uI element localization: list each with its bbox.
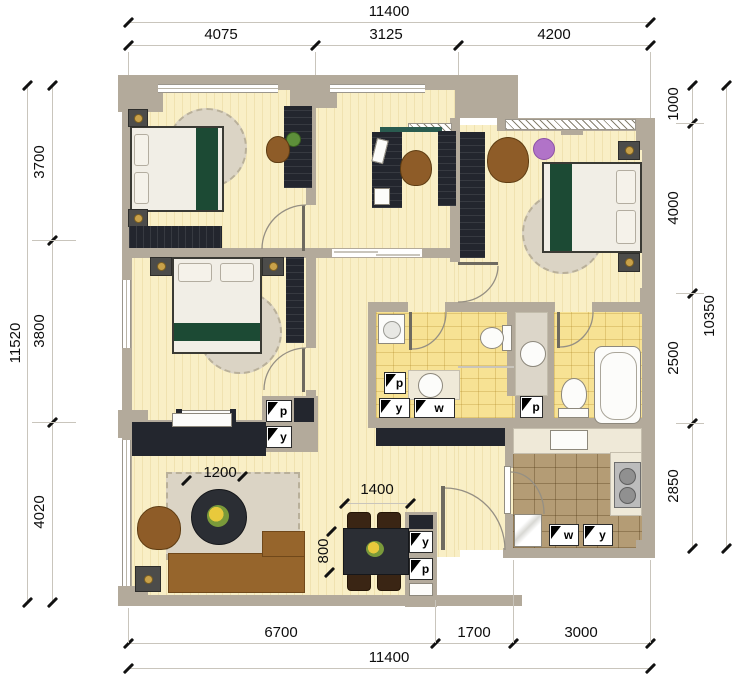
burner	[619, 468, 636, 485]
fridge	[514, 514, 542, 547]
stove	[614, 462, 641, 508]
door-arc	[511, 472, 544, 514]
dim-ext	[513, 560, 514, 643]
dim-ext	[458, 52, 459, 75]
bookshelf	[438, 131, 456, 206]
dim-tick	[645, 40, 656, 51]
floor-plan: p y p y w p y p w y 1200 1400 800 11400 …	[0, 0, 750, 692]
desk-chair	[400, 150, 432, 186]
wall-right	[642, 118, 655, 558]
dim-ext	[315, 52, 316, 75]
washer-drum	[383, 321, 401, 339]
dim-ext	[676, 293, 704, 294]
bed	[172, 257, 262, 354]
fixture-letter: y	[396, 401, 403, 415]
table-flowers	[366, 541, 384, 557]
column	[455, 75, 518, 118]
toilet-bowl	[480, 327, 504, 349]
fixture-tag: p	[520, 396, 543, 418]
dim-bottom-overall: 11400	[339, 649, 439, 666]
dim-ext	[128, 52, 129, 75]
window	[122, 440, 131, 586]
dim-line	[128, 22, 650, 23]
tv	[172, 413, 232, 427]
pillow	[134, 172, 149, 204]
fixture-tag: p	[266, 400, 292, 422]
kitchen-sink	[550, 430, 588, 450]
wall-bedroom2-right	[306, 258, 316, 348]
fixture-tag: p	[409, 558, 433, 580]
nightstand	[262, 257, 284, 276]
dim-left-seg3: 4020	[31, 482, 49, 542]
pillow	[134, 134, 149, 166]
desk-chair	[266, 136, 290, 163]
window	[122, 280, 131, 348]
dim-bottom-seg1: 6700	[231, 624, 331, 641]
fixture-letter: y	[280, 430, 287, 444]
bay-window-hatch	[505, 119, 636, 130]
dim-line	[27, 85, 28, 602]
nightstand	[618, 253, 640, 272]
shaft-block	[409, 515, 433, 529]
wardrobe	[286, 257, 304, 343]
dim-tick	[687, 543, 698, 554]
nightstand	[128, 109, 148, 127]
fixture-letter: p	[532, 400, 539, 414]
door-arc	[262, 205, 306, 249]
fixture-letter: w	[434, 401, 443, 415]
door-leaf	[504, 466, 511, 514]
wardrobe	[129, 226, 222, 248]
shaft-box	[409, 583, 433, 596]
shaft-block	[294, 398, 314, 422]
window	[158, 84, 278, 93]
dim-line	[344, 503, 410, 504]
dim-ext	[32, 240, 76, 241]
wardrobe	[460, 132, 485, 258]
shower-partition	[458, 366, 514, 368]
wall-bottom	[122, 595, 522, 606]
fixture-letter: y	[422, 535, 429, 549]
bed	[130, 126, 224, 212]
dim-ext	[676, 423, 704, 424]
tv-cabinet	[132, 422, 266, 456]
entry-porch	[437, 557, 505, 595]
plant	[533, 138, 555, 160]
dim-top-seg2: 3125	[336, 26, 436, 43]
armchair	[137, 506, 181, 550]
dim-ext	[676, 123, 704, 124]
pillow	[178, 263, 212, 282]
dim-right-seg4: 2850	[665, 456, 683, 516]
dim-top-overall: 11400	[339, 3, 439, 20]
dim-top-seg3: 4200	[504, 26, 604, 43]
table-plant	[207, 505, 229, 527]
dim-tick	[22, 597, 33, 608]
dim-ext	[650, 560, 651, 643]
wall-kitchen-left	[505, 514, 513, 558]
armchair	[487, 137, 529, 183]
wall-bath-top	[445, 302, 555, 312]
dim-ext	[435, 600, 436, 643]
fixture-letter: y	[599, 528, 606, 542]
nightstand	[128, 209, 148, 227]
nightstand	[150, 257, 172, 276]
fixture-tag: w	[414, 398, 455, 418]
dim-left-overall: 11520	[7, 313, 25, 373]
printer	[374, 188, 390, 205]
dim-line	[692, 85, 693, 548]
fixture-letter: p	[396, 376, 403, 390]
wall-bath-top	[592, 302, 655, 312]
fixture-tag: y	[379, 398, 410, 418]
dim-ext	[650, 52, 651, 118]
pillow	[616, 170, 636, 204]
dim-ext	[128, 608, 129, 643]
bed-runner	[174, 323, 260, 341]
side-table	[135, 566, 161, 592]
dim-right-seg3: 2500	[665, 328, 683, 388]
dim-bottom-seg3: 3000	[531, 624, 631, 641]
window	[330, 84, 425, 93]
burner	[619, 487, 636, 504]
wall-bath1-left	[368, 302, 376, 428]
pillow	[220, 263, 254, 282]
door-arc	[412, 312, 446, 349]
pillow	[616, 210, 636, 244]
entry-door-arc	[445, 488, 505, 550]
sink-basin	[520, 341, 546, 367]
nightstand	[618, 141, 640, 160]
dim-top-seg1: 4075	[171, 26, 271, 43]
dim-left-seg1: 3700	[31, 132, 49, 192]
fixture-tag: y	[409, 531, 433, 553]
door-arc	[458, 266, 498, 302]
hall-cabinet	[376, 428, 506, 446]
dim-right-seg2: 4000	[665, 178, 683, 238]
fixture-letter: p	[280, 404, 287, 418]
sink-basin	[418, 373, 443, 398]
dim-tick	[645, 663, 656, 674]
toilet-tank	[558, 408, 589, 418]
wall-bath-divider	[548, 312, 554, 396]
sofa-chaise	[262, 531, 305, 557]
sliding-door-panel	[376, 254, 420, 256]
dim-tick	[645, 17, 656, 28]
dim-line	[128, 668, 650, 669]
column	[636, 540, 655, 558]
fixture-letter: p	[422, 562, 429, 576]
fixture-tag: y	[266, 426, 292, 448]
dim-tick	[721, 543, 732, 554]
washing-machine	[378, 314, 405, 344]
fixture-tag: w	[549, 524, 579, 546]
fixture-tag: y	[583, 524, 613, 546]
bed	[542, 162, 642, 253]
bathtub-inner	[600, 352, 637, 420]
door-arc	[560, 312, 593, 347]
dim-line	[128, 643, 650, 644]
dim-dining-width: 1400	[352, 481, 402, 498]
dim-left-seg2: 3800	[31, 301, 49, 361]
dim-right-seg1: 1000	[665, 74, 683, 134]
sliding-door-panel	[334, 251, 378, 253]
sofa	[168, 553, 305, 593]
dim-line	[128, 45, 650, 46]
toilet-bowl	[561, 378, 587, 410]
fixture-tag: p	[384, 372, 406, 394]
dim-right-overall: 10350	[701, 286, 719, 346]
fixture-letter: w	[564, 528, 573, 542]
dim-line	[52, 85, 53, 602]
dim-ext	[32, 422, 76, 423]
door-leaf	[458, 262, 498, 265]
door-arc	[264, 348, 306, 390]
dim-line	[726, 85, 727, 548]
wall-kitchen-bottom	[503, 548, 655, 558]
dim-tick	[47, 597, 58, 608]
bed-runner	[550, 164, 572, 251]
bed-runner	[196, 128, 218, 210]
